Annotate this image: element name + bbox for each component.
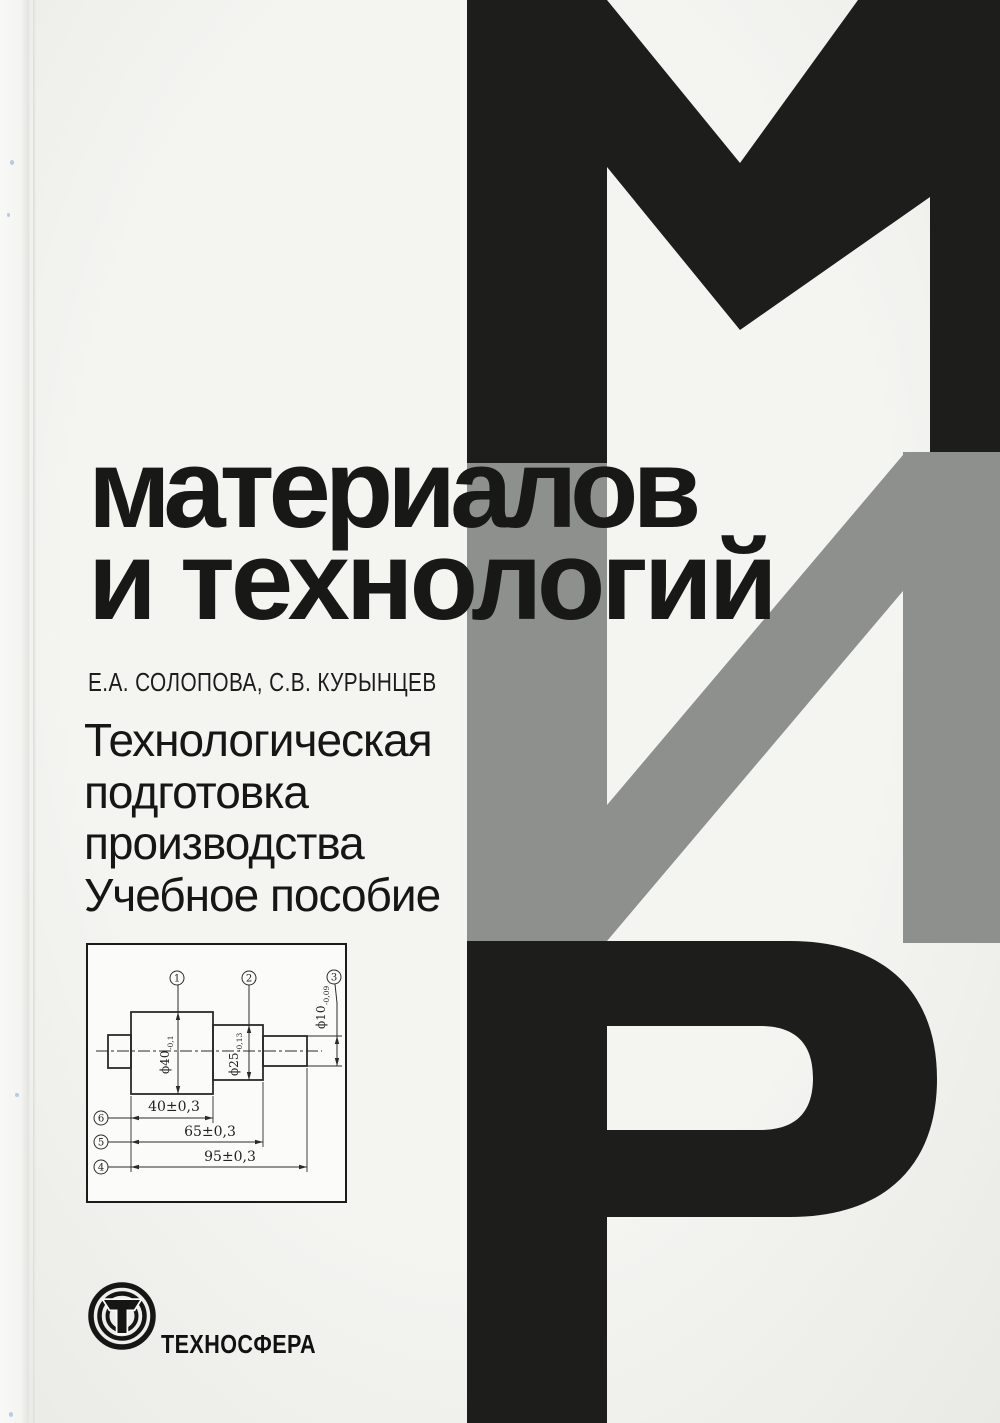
svg-text:-0,1: -0,1 bbox=[166, 1036, 175, 1050]
authors-line: Е.А. СОЛОПОВА, С.В. КУРЫНЦЕВ bbox=[88, 669, 437, 695]
dia-label-25: ϕ25 -0,13 bbox=[227, 1033, 244, 1076]
datum-2: 2 bbox=[246, 974, 252, 985]
datum-numbers: 1 2 3 6 5 4 bbox=[98, 973, 337, 1174]
title-line-2: подготовка bbox=[84, 767, 440, 819]
publisher-name: ТЕХНОСФЕРА bbox=[161, 1329, 316, 1360]
title-line-4: Учебное пособие bbox=[84, 870, 440, 922]
svg-text:ϕ25: ϕ25 bbox=[227, 1053, 241, 1076]
svg-text:ϕ10: ϕ10 bbox=[314, 1006, 328, 1029]
datum-4: 4 bbox=[98, 1163, 104, 1174]
book-cover: материалов и технологий Е.А. СОЛОПОВА, С… bbox=[0, 0, 1000, 1423]
svg-text:-0,13: -0,13 bbox=[235, 1033, 244, 1052]
dim-40: 40±0,3 bbox=[148, 1099, 200, 1115]
shaft-drawing: ϕ40 -0,1 ϕ25 -0,13 ϕ10 -0,09 40±0,3 65±0… bbox=[88, 945, 344, 1200]
dia-label-40: ϕ40 -0,1 bbox=[158, 1036, 175, 1074]
datum-3: 3 bbox=[331, 973, 337, 984]
letter-r-shape bbox=[467, 941, 937, 1423]
dust-speck bbox=[10, 160, 14, 165]
dust-speck bbox=[7, 213, 10, 217]
book-title: Технологическая подготовка производства … bbox=[84, 715, 440, 921]
dia-label-10: ϕ10 -0,09 bbox=[314, 986, 331, 1029]
tehnosfera-logo-icon bbox=[84, 1280, 160, 1356]
shaft-outline bbox=[108, 1012, 307, 1094]
diameter-dimensions bbox=[178, 984, 337, 1094]
dust-speck bbox=[9, 1412, 13, 1417]
series-title-line2: и технологий bbox=[88, 525, 774, 637]
dim-95: 95±0,3 bbox=[204, 1149, 256, 1165]
dim-65: 65±0,3 bbox=[184, 1124, 236, 1140]
datum-1: 1 bbox=[174, 974, 180, 985]
datum-5: 5 bbox=[98, 1138, 104, 1149]
svg-text:ϕ40: ϕ40 bbox=[158, 1051, 172, 1074]
cover-hinge-line bbox=[33, 0, 36, 1423]
letter-m-shape bbox=[467, 0, 1000, 463]
title-line-1: Технологическая bbox=[84, 715, 440, 767]
datum-6: 6 bbox=[98, 1114, 104, 1125]
title-line-3: производства bbox=[84, 818, 440, 870]
svg-text:-0,09: -0,09 bbox=[322, 986, 331, 1005]
book-left-edge bbox=[0, 0, 30, 1423]
technical-drawing-box: ϕ40 -0,1 ϕ25 -0,13 ϕ10 -0,09 40±0,3 65±0… bbox=[86, 943, 347, 1203]
dust-speck bbox=[15, 1093, 19, 1097]
mir-letters-art bbox=[0, 0, 1000, 1423]
